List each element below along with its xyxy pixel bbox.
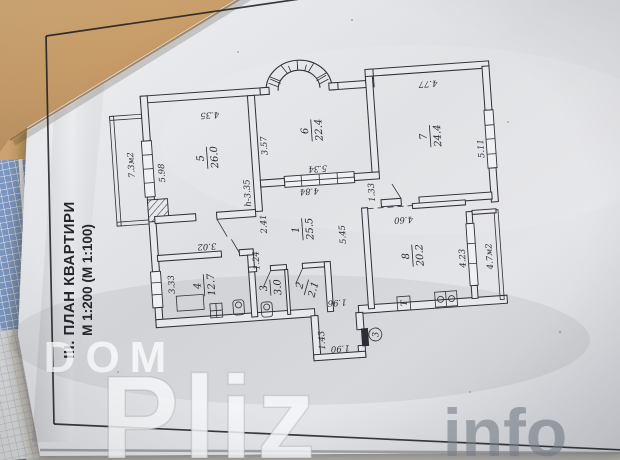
vignette [0,0,620,460]
scene: ІІІ. ПЛАН КВАРТИРИ М 1:200 (М 1:100) [0,0,620,460]
photo-of-floor-plan: ІІІ. ПЛАН КВАРТИРИ М 1:200 (М 1:100) [0,0,620,460]
